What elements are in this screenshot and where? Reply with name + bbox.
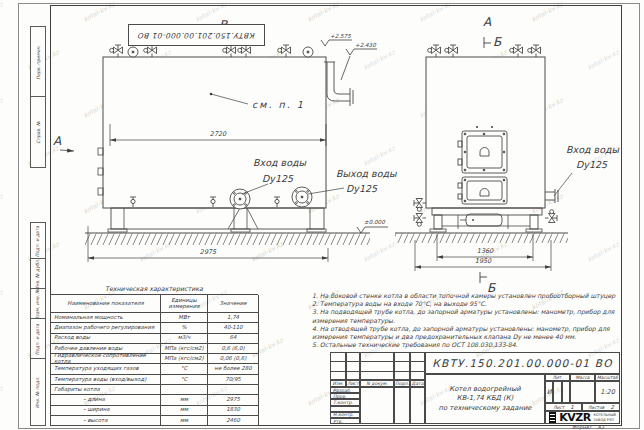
- watermark-text: kotel-kv.kz: [138, 48, 172, 71]
- col-podp: Подп.: [394, 380, 410, 387]
- spec-cell-unit: МВт: [161, 313, 208, 323]
- stamp-inv-podl: Инв. № подл.: [30, 358, 46, 426]
- spec-cell-value: 70/95: [208, 375, 259, 385]
- stamp-label: Справ. №: [36, 121, 41, 143]
- spec-cell-value: 0,06 (0,6): [208, 354, 259, 364]
- lit-label: Лит.: [545, 374, 570, 381]
- product-line-1: Котел водогрейный: [449, 385, 520, 394]
- spec-table: Техническая характеристика Наименование …: [50, 285, 258, 426]
- watermark-text: kotel-kv.kz: [362, 240, 396, 263]
- watermark-text: kotel-kv.kz: [586, 48, 620, 71]
- note-line: 1. На боковой стенке котла в области топ…: [312, 292, 618, 300]
- view-marker-a-top: А: [483, 15, 492, 29]
- product-line-2: КВ-1,74 КБД (К): [457, 394, 513, 403]
- lit-value: И: [545, 381, 553, 403]
- spec-table-rows: Номинальная мощность МВт 1,74 Диапазон р…: [51, 313, 258, 426]
- front-view: [395, 45, 568, 243]
- grid-cell: [360, 352, 394, 380]
- grid-cell: [330, 352, 346, 380]
- spec-table-row: Расход воды м3/ч 64: [51, 334, 258, 344]
- col-data: Дата: [410, 380, 425, 387]
- logo-subtitle-2: ЗАВОД РЭП: [594, 418, 616, 422]
- spec-cell-unit: %: [161, 323, 208, 333]
- spec-cell-name: Температура воды (вход/выход): [51, 375, 161, 385]
- stamp-label: Подп. и дата: [36, 323, 41, 354]
- watermark-text: kotel-kv.kz: [586, 240, 620, 263]
- spec-cell-unit: °С: [161, 375, 208, 385]
- grid-cell: [346, 352, 360, 380]
- stamp-podp-data-2: Подп. и дата: [30, 318, 46, 360]
- drawing-sheet: kotel-kv.kzkotel-kv.kzkotel-kv.kzkotel-k…: [0, 0, 644, 430]
- dimensions: [88, 124, 551, 271]
- title-block-doc-cell: КВТУ.150.201.00.000-01 ВО: [425, 352, 620, 374]
- note-line: 5. Остальные технические требования по О…: [312, 341, 618, 349]
- stamp-label: Взам. инв. №: [36, 288, 41, 319]
- sheets-total-cell: Листов 2: [582, 403, 620, 411]
- spec-col-value: Значение: [208, 295, 259, 313]
- watermark-text: kotel-kv.kz: [306, 0, 340, 23]
- spec-cell-value: 2975: [208, 395, 259, 405]
- scale-label: Масштаб: [595, 374, 620, 381]
- mass-label: Масса: [570, 374, 595, 381]
- watermark-text: kotel-kv.kz: [82, 96, 116, 119]
- spec-cell-name: Температура уходящих газов: [51, 364, 161, 374]
- watermark-text: kotel-kv.kz: [530, 0, 564, 23]
- watermark-text: kotel-kv.kz: [82, 192, 116, 215]
- doc-number: КВТУ.150.201.00.000-01 ВО: [432, 357, 612, 369]
- spec-cell-unit: мм: [161, 395, 208, 405]
- col-izm: Изм.: [330, 380, 346, 387]
- format-label: Формат: [572, 425, 591, 430]
- watermark-text: kotel-kv.kz: [0, 384, 4, 407]
- watermark-text: kotel-kv.kz: [250, 48, 284, 71]
- spec-cell-name: Гидравлическое сопротивление котла: [51, 354, 161, 364]
- spec-cell-unit: МПа (кгс/см2): [161, 344, 208, 354]
- lower-door: [458, 177, 507, 204]
- watermark-text: kotel-kv.kz: [306, 96, 340, 119]
- dim-body-width: 2720: [210, 130, 227, 138]
- sheets-total-value: 2: [610, 404, 614, 410]
- spec-cell-name: – высота: [51, 416, 161, 426]
- watermark-text: kotel-kv.kz: [0, 192, 4, 215]
- elevation-ground: ±0.000: [364, 219, 385, 225]
- watermark-text: kotel-kv.kz: [250, 144, 284, 167]
- stamp-podp-data-1: Подп. и дата: [30, 222, 46, 260]
- spec-cell-unit: мм: [161, 406, 208, 416]
- stamp-sprav-no: Справ. №: [30, 96, 46, 168]
- elevation-spout: +2.430: [355, 42, 376, 48]
- role-date-col: [410, 387, 425, 424]
- lit-cell-2: [553, 381, 561, 403]
- grid-line: [330, 371, 425, 372]
- watermark-text: kotel-kv.kz: [586, 144, 620, 167]
- watermark-text: kotel-kv.kz: [418, 0, 452, 23]
- watermark-text: kotel-kv.kz: [362, 48, 396, 71]
- callout-outlet-side-size: Dy125: [346, 183, 378, 194]
- watermark-text: kotel-kv.kz: [0, 96, 4, 119]
- watermark-text: kotel-kv.kz: [138, 240, 172, 263]
- role-name-col: [360, 387, 394, 424]
- dim-frame-width: 1360: [477, 247, 494, 255]
- kvzr-logo-text: KVZR: [559, 411, 590, 424]
- mass-value: [570, 381, 595, 403]
- watermark-text: kotel-kv.kz: [194, 96, 228, 119]
- note-line: 4. На отводящей трубе котла, до запорной…: [312, 325, 618, 341]
- spec-col-unit: Единицы измерения: [161, 295, 208, 313]
- product-line-3: по техническому задание: [439, 404, 532, 413]
- spec-cell-unit: мм: [161, 416, 208, 426]
- spec-cell-unit: МПа (кгс/см2): [161, 354, 208, 364]
- spec-cell-name: Диапазон рабочего регулирования: [51, 323, 161, 333]
- grid-cell: [410, 352, 425, 380]
- dim-overall-length: 2975: [200, 248, 217, 256]
- scale-value: 1:20: [595, 381, 620, 403]
- side-view: [85, 45, 370, 245]
- watermark-text: kotel-kv.kz: [306, 192, 340, 215]
- sheets-total-label: Листов: [588, 405, 604, 410]
- col-list: Лист: [346, 380, 360, 387]
- lit-cell-3: [562, 381, 570, 403]
- grid-cell: [394, 352, 410, 380]
- spec-cell-unit: м3/ч: [161, 334, 208, 344]
- spec-table-row: Габариты котла: [51, 385, 258, 395]
- spec-table-row: – длина мм 2975: [51, 395, 258, 405]
- role-sign-col: [394, 387, 410, 424]
- section-marker-b-top: Б: [493, 35, 502, 49]
- technical-notes: 1. На боковой стенке котла в области топ…: [312, 292, 618, 349]
- callout-inlet-side-size: Dy125: [262, 173, 294, 184]
- spec-table-row: Температура уходящих газов °С не более 2…: [51, 364, 258, 374]
- sheet-no-value: 1: [570, 404, 574, 410]
- spec-cell-name: Габариты котла: [51, 385, 161, 395]
- watermark-text: kotel-kv.kz: [418, 192, 452, 215]
- manufacturer-logo: KVZR КОТЕЛЬНЫЙ ЗАВОД РЭП: [545, 411, 620, 424]
- stamp-perv-primen: Перв. примен.: [30, 26, 46, 98]
- stamp-vzam-inv: Взам. инв. №: [30, 288, 46, 320]
- spec-cell-unit: [161, 385, 208, 395]
- section-marker-a-left: А: [53, 134, 62, 148]
- watermark-text: kotel-kv.kz: [530, 192, 564, 215]
- stamp-label: Перв. примен.: [36, 45, 41, 80]
- format-note: Формат А3: [556, 424, 620, 430]
- spec-cell-value: не более 280: [208, 364, 259, 374]
- note-line: 3. На подводящей трубе котла, до запорно…: [312, 308, 618, 324]
- spec-table-row: Диапазон рабочего регулирования % 40-110: [51, 323, 258, 333]
- watermark-text: kotel-kv.kz: [474, 48, 508, 71]
- stamp-inv-dubl: Инв. № дубл.: [30, 258, 46, 290]
- spec-cell-name: – длина: [51, 395, 161, 405]
- elevation-marks: [321, 40, 388, 233]
- spec-col-name: Наименование показателя: [51, 295, 161, 313]
- sheet-no-cell: Лист 1: [545, 403, 582, 411]
- spec-cell-unit: °С: [161, 364, 208, 374]
- spec-table-row: – ширина мм 1830: [51, 406, 258, 416]
- spec-cell-value: 2460: [208, 416, 259, 426]
- spec-cell-name: Номинальная мощность: [51, 313, 161, 323]
- role-utv: Утв.: [330, 418, 360, 424]
- title-block: КВТУ.150.201.00.000-01 ВО Изм. Лист N до…: [330, 352, 620, 424]
- spec-table-row: Гидравлическое сопротивление котла МПа (…: [51, 354, 258, 364]
- spec-cell-name: Расход воды: [51, 334, 161, 344]
- spec-cell-name: – ширина: [51, 406, 161, 416]
- spec-table-row: Температура воды (вход/выход) °С 70/95: [51, 375, 258, 385]
- callout-inlet-front-title: Вход воды: [566, 144, 620, 155]
- product-title: Котел водогрейный КВ-1,74 КБД (К) по тех…: [425, 374, 545, 424]
- spec-cell-value: 64: [208, 334, 259, 344]
- spec-cell-value: 1830: [208, 406, 259, 416]
- stamp-label: Подп. и дата: [36, 225, 41, 256]
- grid-line: [330, 361, 425, 362]
- spec-cell-value: 1,74: [208, 313, 259, 323]
- spec-table-row: – высота мм 2460: [51, 416, 258, 426]
- spec-cell-value: [208, 385, 259, 395]
- watermark-text: kotel-kv.kz: [138, 144, 172, 167]
- stamp-label: Инв. № дубл.: [36, 258, 41, 289]
- watermark-text: kotel-kv.kz: [474, 144, 508, 167]
- watermark-text: kotel-kv.kz: [530, 96, 564, 119]
- spec-cell-value: 0,6 (6,0): [208, 344, 259, 354]
- watermark-text: kotel-kv.kz: [194, 192, 228, 215]
- spec-table-header: Наименование показателя Единицы измерени…: [51, 295, 258, 313]
- col-dokum: N докум.: [360, 380, 394, 387]
- callout-inlet-front-size: Dy125: [576, 159, 608, 170]
- watermark-text: kotel-kv.kz: [194, 0, 228, 23]
- upper-door: [458, 131, 507, 173]
- inlet-nozzle: [545, 189, 558, 203]
- doc-number-top: КВТУ.150.201.00.000-01 ВО: [138, 31, 255, 40]
- spec-cell-value: 40-110: [208, 323, 259, 333]
- callout-outlet-side-title: Выход воды: [336, 168, 397, 179]
- callout-see-note: см. п. 1: [252, 99, 305, 110]
- spec-table-row: Номинальная мощность МВт 1,74: [51, 313, 258, 323]
- sheet-no-label: Лист: [553, 405, 564, 410]
- stamp-label: Инв. № подл.: [36, 376, 41, 408]
- kvzr-logo-icon: [549, 412, 556, 423]
- watermark-text: kotel-kv.kz: [474, 240, 508, 263]
- watermark-text: kotel-kv.kz: [418, 96, 452, 119]
- doc-number-top-box: КВТУ.150.201.00.000-01 ВО: [128, 24, 265, 46]
- watermark-text: kotel-kv.kz: [250, 240, 284, 263]
- watermark-text: kotel-kv.kz: [0, 0, 4, 23]
- watermark-text: kotel-kv.kz: [82, 0, 116, 23]
- dim-overall-width: 1950: [475, 257, 492, 265]
- elevation-valves-top: +2.575: [330, 33, 351, 39]
- note-line: 2. Температура воды на входе 70°С, на вы…: [312, 300, 618, 308]
- format-value: А3: [598, 425, 604, 430]
- watermark-text: kotel-kv.kz: [362, 144, 396, 167]
- callout-inlet-side-title: Вход воды: [253, 157, 307, 168]
- watermark-text: kotel-kv.kz: [0, 288, 4, 311]
- spec-table-title: Техническая характеристика: [50, 285, 258, 294]
